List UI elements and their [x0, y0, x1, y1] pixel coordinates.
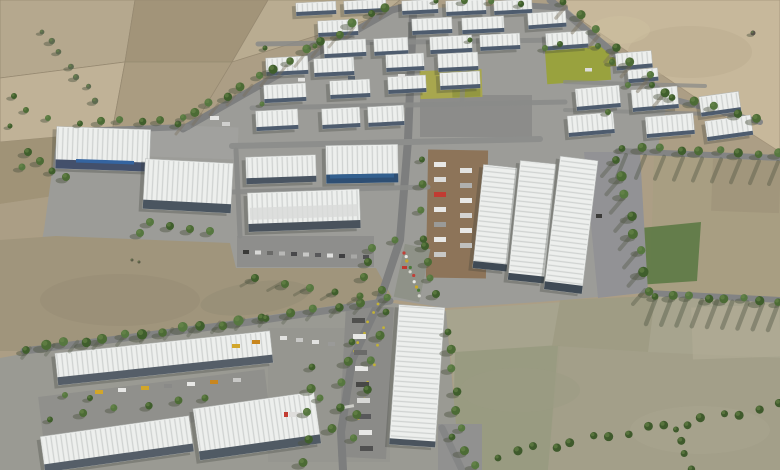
14 — [236, 83, 240, 87]
tree-cluster — [433, 291, 437, 295]
6 — [117, 117, 121, 121]
warehouse-unit-grid — [364, 105, 405, 130]
7 — [118, 388, 126, 392]
6 — [383, 309, 386, 312]
8 — [620, 190, 625, 195]
tree-cluster — [596, 43, 599, 46]
tree-cluster — [425, 259, 429, 263]
16 — [660, 421, 664, 425]
tree-cluster — [543, 45, 546, 48]
13 — [258, 314, 262, 318]
7 — [593, 26, 597, 30]
warehouse-unit-grid — [384, 75, 427, 97]
4 — [678, 437, 682, 441]
6 — [460, 198, 472, 203]
16 — [566, 439, 570, 443]
5 — [299, 459, 303, 463]
13 — [98, 335, 103, 340]
3 — [472, 462, 476, 466]
4 — [312, 340, 319, 344]
5 — [345, 357, 350, 362]
7 — [434, 207, 446, 212]
tree-cluster — [12, 93, 15, 96]
tree-cluster — [307, 285, 311, 289]
3 — [398, 74, 405, 78]
14 — [287, 58, 291, 62]
tree-cluster — [63, 392, 66, 395]
7 — [626, 58, 630, 62]
warehouse-building — [385, 304, 445, 450]
9 — [360, 446, 373, 451]
7 — [56, 49, 59, 52]
tree-cluster — [63, 174, 67, 178]
8 — [382, 326, 385, 329]
tree-cluster — [422, 243, 426, 247]
tree-cluster — [263, 46, 266, 49]
tree-cluster — [24, 107, 27, 110]
7 — [366, 320, 369, 323]
tree-cluster — [610, 59, 613, 62]
14 — [381, 4, 386, 9]
13 — [122, 330, 126, 334]
5 — [328, 425, 332, 429]
tree-cluster — [361, 274, 365, 278]
3 — [461, 447, 466, 452]
8 — [646, 288, 650, 292]
3 — [348, 76, 355, 80]
8 — [639, 268, 644, 273]
7 — [49, 38, 52, 41]
7 — [661, 89, 666, 94]
warehouse-unit-grid — [292, 1, 337, 19]
tree — [138, 261, 140, 263]
16 — [554, 444, 558, 448]
6 — [460, 213, 472, 218]
tree-cluster — [313, 44, 316, 47]
5 — [48, 417, 51, 420]
8 — [617, 172, 622, 177]
6 — [452, 407, 456, 411]
7 — [40, 30, 42, 32]
16 — [722, 411, 726, 415]
4 — [518, 1, 521, 4]
tree-cluster — [558, 41, 561, 44]
16 — [736, 411, 741, 416]
vehicle — [402, 266, 407, 269]
9 — [357, 398, 370, 403]
warehouse-unit-grid — [641, 113, 695, 141]
11 — [327, 254, 333, 258]
11 — [291, 252, 297, 256]
14 — [191, 109, 196, 114]
vehicle — [585, 68, 592, 72]
10 — [412, 274, 415, 277]
warehouse-unit-grid — [541, 31, 588, 54]
6 — [181, 115, 184, 118]
warehouse-unit-grid — [408, 17, 453, 38]
14 — [317, 38, 321, 42]
13 — [196, 322, 201, 327]
tree-cluster — [317, 395, 321, 399]
warehouse-unit-grid — [571, 85, 621, 114]
warehouse-unit-grid — [326, 79, 371, 102]
7 — [434, 222, 446, 227]
warehouse-unit-grid — [476, 33, 521, 54]
4 — [688, 466, 692, 470]
6 — [364, 386, 368, 390]
6 — [353, 411, 357, 415]
warehouse-unit-grid — [310, 57, 355, 80]
6 — [351, 435, 355, 439]
5 — [80, 410, 84, 414]
vehicle — [284, 412, 288, 417]
6 — [384, 294, 388, 298]
tree-cluster — [49, 168, 53, 172]
8 — [628, 212, 633, 217]
10 — [405, 255, 408, 258]
4 — [418, 207, 422, 211]
14 — [269, 65, 274, 70]
11 — [303, 253, 309, 257]
6 — [459, 425, 463, 429]
3 — [298, 78, 305, 82]
9 — [735, 149, 740, 154]
tree-cluster — [392, 237, 396, 241]
tree-cluster — [379, 287, 383, 291]
8 — [629, 230, 634, 235]
tree-cluster — [137, 230, 141, 234]
vehicle — [252, 340, 260, 344]
5 — [735, 110, 739, 114]
5 — [304, 409, 308, 413]
tree-cluster — [365, 259, 369, 263]
warehouse-building — [139, 159, 234, 217]
14 — [337, 31, 341, 35]
6 — [460, 168, 472, 173]
7 — [434, 252, 446, 257]
13 — [83, 338, 88, 343]
5 — [690, 97, 695, 102]
7 — [74, 75, 77, 78]
8 — [613, 157, 617, 161]
6 — [376, 331, 381, 336]
9 — [657, 144, 661, 148]
9 — [353, 334, 366, 339]
9 — [638, 144, 643, 149]
tree-cluster — [357, 293, 361, 297]
surface-patch — [691, 304, 780, 359]
7 — [187, 382, 195, 386]
4 — [420, 157, 423, 160]
14 — [303, 45, 307, 49]
4 — [328, 342, 335, 346]
5 — [305, 436, 309, 440]
13 — [219, 322, 223, 326]
6 — [78, 121, 81, 124]
13 — [138, 330, 143, 335]
6 — [460, 228, 472, 233]
vehicle — [596, 214, 602, 218]
7 — [377, 303, 380, 306]
warehouse-unit-grid — [252, 109, 299, 134]
4 — [419, 181, 423, 185]
5 — [338, 379, 342, 383]
13 — [159, 329, 163, 333]
13 — [42, 341, 47, 346]
5 — [337, 404, 341, 408]
13 — [234, 316, 239, 321]
14 — [257, 72, 261, 76]
11 — [279, 252, 285, 256]
8 — [652, 294, 655, 297]
9 — [359, 430, 372, 435]
warehouse-building — [242, 155, 317, 188]
7 — [95, 390, 103, 394]
7 — [434, 177, 446, 182]
6 — [98, 118, 102, 122]
13 — [23, 347, 27, 351]
surface-patch — [711, 159, 780, 213]
7 — [69, 64, 72, 67]
9 — [619, 146, 622, 149]
warehouse-building — [51, 126, 151, 174]
3 — [449, 434, 452, 437]
tree-cluster — [88, 395, 91, 398]
4 — [420, 236, 424, 240]
16 — [684, 422, 688, 426]
16 — [591, 433, 595, 437]
6 — [310, 305, 314, 309]
tree-cluster — [260, 102, 263, 105]
9 — [775, 149, 779, 153]
11 — [267, 251, 273, 255]
tree — [751, 31, 754, 34]
tree-cluster — [46, 115, 49, 118]
terrain-mottle — [460, 368, 580, 412]
16 — [495, 455, 498, 458]
7 — [356, 341, 359, 344]
5 — [146, 403, 150, 407]
8 — [720, 295, 724, 299]
9 — [352, 318, 365, 323]
6 — [140, 118, 144, 122]
16 — [514, 447, 519, 452]
6 — [454, 388, 458, 392]
8 — [775, 299, 779, 303]
tree-cluster — [282, 281, 286, 285]
tree-cluster — [468, 38, 471, 41]
tree-cluster — [207, 228, 211, 232]
14 — [205, 99, 209, 103]
tree-cluster — [147, 219, 151, 223]
tree-cluster — [369, 245, 373, 249]
16 — [776, 400, 780, 404]
5 — [111, 405, 115, 409]
7 — [434, 192, 446, 197]
5 — [175, 397, 179, 401]
tree — [131, 259, 133, 261]
10 — [409, 266, 412, 269]
5 — [309, 364, 312, 367]
11 — [339, 254, 345, 258]
8 — [756, 297, 761, 302]
4 — [681, 450, 685, 454]
tree-cluster — [332, 289, 336, 293]
9 — [695, 147, 699, 151]
11 — [255, 251, 261, 255]
5 — [669, 95, 672, 98]
9 — [718, 147, 722, 151]
6 — [263, 316, 266, 319]
7 — [164, 384, 172, 388]
6 — [448, 345, 453, 350]
8 — [376, 344, 379, 347]
tree-cluster — [252, 275, 256, 279]
16 — [756, 406, 760, 410]
8 — [686, 292, 690, 296]
7 — [577, 11, 582, 16]
8 — [670, 291, 675, 296]
10 — [413, 280, 416, 283]
14 — [225, 93, 229, 97]
warehouse-building — [322, 144, 399, 186]
6 — [460, 183, 472, 188]
vehicle — [222, 122, 230, 126]
7 — [141, 386, 149, 390]
11 — [243, 250, 249, 254]
11 — [351, 255, 357, 259]
vehicle — [210, 116, 219, 120]
tree-cluster — [19, 164, 23, 168]
8 — [741, 295, 745, 299]
8 — [373, 363, 376, 366]
4 — [674, 427, 677, 430]
vehicle — [232, 344, 240, 348]
7 — [434, 162, 446, 167]
tree-cluster — [606, 109, 609, 112]
tree-cluster — [8, 124, 11, 127]
aerial-view-industrial-park — [0, 0, 780, 470]
warehouse-unit-grid — [490, 0, 533, 18]
13 — [179, 323, 184, 328]
7 — [372, 311, 375, 314]
6 — [287, 309, 292, 314]
7 — [613, 44, 617, 48]
6 — [460, 243, 472, 248]
tree-cluster — [427, 275, 431, 279]
tree-cluster — [187, 226, 191, 230]
tree-cluster — [37, 158, 41, 162]
tree-cluster — [202, 395, 206, 399]
terrain-patch — [548, 346, 780, 470]
warehouse-unit-grid — [436, 71, 481, 93]
6 — [336, 304, 340, 308]
7 — [92, 98, 95, 101]
6 — [157, 117, 161, 121]
warehouse-unit-grid — [382, 53, 425, 75]
7 — [648, 72, 652, 76]
10 — [405, 259, 408, 262]
warehouse-unit-grid — [260, 83, 307, 106]
5 — [349, 339, 352, 342]
tree-cluster — [626, 82, 629, 85]
10 — [415, 285, 418, 288]
10 — [402, 251, 405, 254]
5 — [753, 115, 757, 119]
terrain-patch — [552, 296, 655, 352]
4 — [280, 336, 287, 340]
scene-canvas — [0, 0, 780, 470]
tree-cluster — [650, 82, 653, 85]
9 — [679, 147, 683, 151]
16 — [626, 431, 630, 435]
5 — [307, 385, 312, 390]
14 — [369, 11, 373, 15]
16 — [530, 443, 534, 447]
16 — [605, 433, 610, 438]
tree-cluster — [25, 149, 29, 153]
6 — [448, 365, 452, 369]
9 — [756, 151, 760, 155]
5 — [711, 102, 715, 106]
13 — [60, 338, 65, 343]
11 — [315, 253, 321, 257]
10 — [417, 289, 420, 292]
6 — [445, 329, 448, 332]
9 — [354, 350, 367, 355]
4 — [296, 338, 303, 342]
6 — [368, 357, 372, 361]
terrain-mottle — [40, 274, 200, 326]
7 — [210, 380, 218, 384]
10 — [409, 270, 412, 273]
7 — [233, 378, 241, 382]
16 — [697, 414, 702, 419]
10 — [418, 294, 421, 297]
7 — [87, 84, 90, 87]
16 — [645, 423, 649, 427]
8 — [706, 295, 710, 299]
tree-cluster — [167, 223, 171, 227]
warehouse-unit-grid — [318, 107, 361, 132]
7 — [434, 237, 446, 242]
14 — [348, 19, 353, 24]
8 — [638, 247, 642, 251]
